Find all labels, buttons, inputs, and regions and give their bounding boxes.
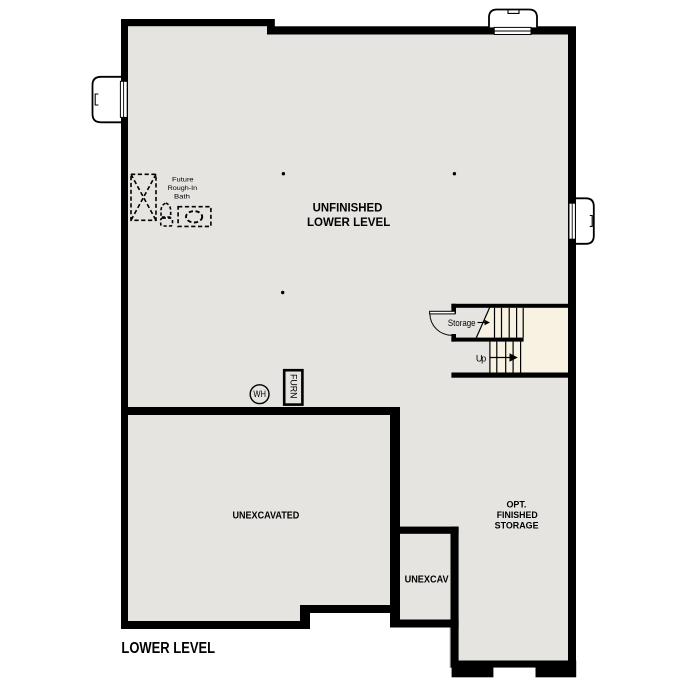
svg-text:Storage: Storage [448, 318, 476, 328]
svg-text:FINISHED: FINISHED [497, 510, 538, 521]
svg-text:FURN: FURN [288, 374, 298, 399]
svg-text:UNEXCAVATED: UNEXCAVATED [232, 510, 299, 522]
svg-text:WH: WH [253, 389, 266, 399]
svg-text:UNEXCAV: UNEXCAV [405, 573, 449, 585]
svg-text:STORAGE: STORAGE [495, 521, 539, 532]
svg-text:LOWER LEVEL: LOWER LEVEL [307, 215, 391, 229]
svg-text:OPT.: OPT. [506, 500, 526, 511]
svg-text:UNFINISHED: UNFINISHED [313, 200, 383, 214]
svg-text:Rough-In: Rough-In [168, 185, 198, 192]
svg-text:Future: Future [172, 177, 194, 184]
svg-text:LOWER LEVEL: LOWER LEVEL [121, 640, 215, 657]
svg-text:Up: Up [476, 354, 486, 364]
svg-text:Bath: Bath [174, 193, 190, 200]
